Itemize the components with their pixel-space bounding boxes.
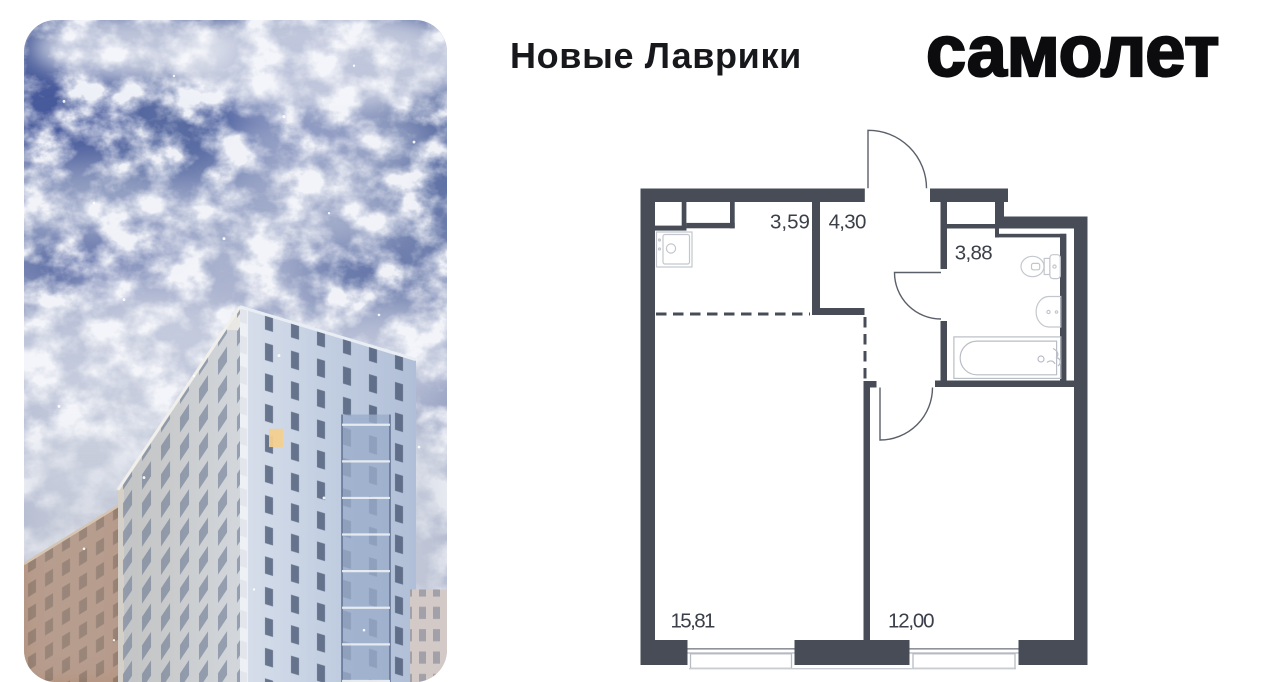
svg-text:12,00: 12,00	[888, 609, 934, 632]
svg-text:3,88: 3,88	[955, 242, 992, 265]
svg-text:4,30: 4,30	[829, 210, 866, 233]
svg-text:15,81: 15,81	[671, 609, 715, 632]
svg-text:3,59: 3,59	[770, 210, 810, 233]
